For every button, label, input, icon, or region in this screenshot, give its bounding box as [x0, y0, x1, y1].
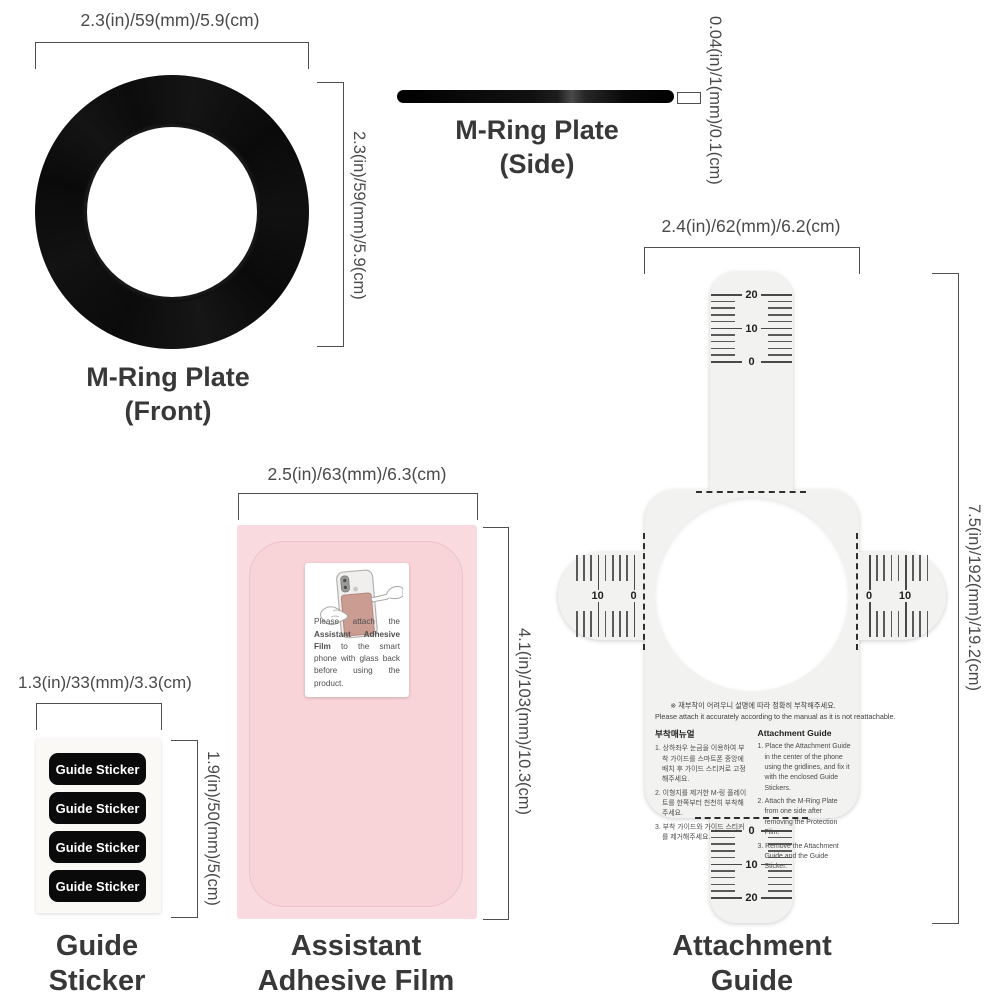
guide-sticker-width-dimension: 1.3(in)/33(mm)/3.3(cm) [18, 673, 178, 693]
guide-sticker-height-bracket [171, 740, 198, 918]
guide-manual-korean-title: 부착매뉴얼 [655, 728, 749, 740]
guide-notice-english: Please attach it accurately according to… [655, 711, 851, 722]
attachment-guide-label-line2: Guide [652, 964, 852, 999]
film-sticker-text: Please attach the Assistant Adhesive Fil… [314, 616, 400, 690]
guide-sticker-item: Guide Sticker [49, 753, 146, 785]
guide-manual-korean-item: 3. 부착 가이드와 가이드 스티커를 제거해주세요. [655, 823, 749, 844]
adhesive-film-height-dimension: 4.1(in)/103(mm)/10.3(cm) [514, 600, 533, 844]
guide-manual-korean: 부착매뉴얼 1. 상하좌우 눈금을 이용하여 부착 가이드를 스마트폰 중앙에 … [655, 728, 749, 875]
guide-ruler-left: 100 [576, 552, 636, 640]
guide-dashed-line-top [696, 491, 806, 493]
guide-instructions: ※ 재부착이 어려우니 설명에 따라 정확히 부착해주세요. Please at… [655, 700, 851, 876]
adhesive-film-width-dimension: 2.5(in)/63(mm)/6.3(cm) [238, 464, 476, 485]
guide-sticker-height-dimension: 1.9(in)/50(mm)/5(cm) [203, 742, 222, 914]
guide-sticker-label-line1: Guide [0, 929, 197, 964]
adhesive-film-label: Assistant Adhesive Film [256, 929, 456, 999]
guide-dashed-line-left [643, 533, 645, 650]
guide-manual-english-item: 2. Attach the M-Ring Plate from one side… [758, 797, 852, 838]
guide-manual-korean-item: 2. 이형지를 제거한 M-링 플레이트를 한쪽부터 천천히 부착해주세요. [655, 789, 749, 820]
film-instruction-sticker: Please attach the Assistant Adhesive Fil… [305, 563, 409, 697]
guide-manual-english-item: 3. Remove the Attachment Guide and the G… [758, 842, 852, 873]
guide-sticker-sheet: Guide Sticker Guide Sticker Guide Sticke… [36, 739, 161, 913]
attachment-guide-height-dimension: 7.5(in)/192(mm)/19.2(cm) [964, 476, 983, 720]
guide-sticker-label: Guide Sticker [0, 929, 197, 999]
attachment-guide-label: Attachment Guide [652, 929, 852, 999]
guide-ruler-right: 010 [869, 552, 929, 640]
guide-sticker-item: Guide Sticker [49, 792, 146, 824]
guide-circle-cutout [655, 497, 849, 691]
adhesive-film-label-line1: Assistant [256, 929, 456, 964]
adhesive-film-image: Please attach the Assistant Adhesive Fil… [237, 525, 477, 919]
attachment-guide-label-line1: Attachment [652, 929, 852, 964]
adhesive-film-height-bracket [483, 527, 509, 920]
guide-ruler-top: 20100 [710, 294, 793, 364]
guide-notice-korean: ※ 재부착이 어려우니 설명에 따라 정확히 부착해주세요. [655, 700, 851, 711]
product-dimension-diagram: 2.3(in)/59(mm)/5.9(cm) 2.3(in)/59(mm)/5.… [0, 0, 1000, 1000]
guide-sticker-item: Guide Sticker [49, 870, 146, 902]
adhesive-film-width-bracket [238, 493, 478, 520]
guide-manual-english: Attachment Guide 1. Place the Attachment… [758, 728, 852, 875]
guide-sticker-item: Guide Sticker [49, 831, 146, 863]
guide-dashed-line-right [856, 533, 858, 650]
guide-manual-english-item: 1. Place the Attachment Guide in the cen… [758, 742, 852, 794]
adhesive-film-label-line2: Adhesive Film [256, 964, 456, 999]
guide-sticker-label-line2: Sticker [0, 964, 197, 999]
guide-manual-english-title: Attachment Guide [758, 728, 852, 738]
guide-manual-korean-item: 1. 상하좌우 눈금을 이용하여 부착 가이드를 스마트폰 중앙에 배치 후 가… [655, 744, 749, 785]
guide-sticker-width-bracket [36, 703, 162, 730]
attachment-guide-height-bracket [932, 273, 959, 924]
